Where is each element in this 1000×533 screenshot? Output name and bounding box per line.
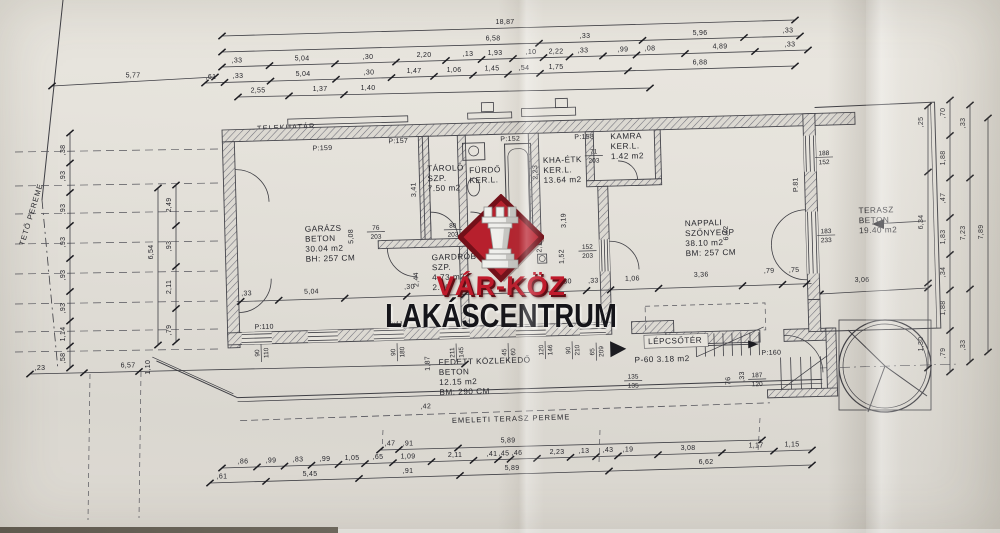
opening-size-label: 90180: [390, 343, 406, 361]
room-label-terasz: TERASZBETON19.40 m2: [858, 205, 897, 235]
room-label-kamra: KAMRAKER.L.1.42 m2: [610, 131, 644, 161]
dim-label: ,38: [60, 145, 67, 156]
dim-label: 1,75: [549, 64, 564, 71]
dim-label: 1,93: [488, 50, 503, 57]
dim-chain-horizontal: 2,551,371,40: [234, 85, 653, 100]
dim-label: 1,37: [313, 86, 328, 93]
position-marker: P.81: [793, 177, 800, 192]
dim-label: ,33: [241, 290, 252, 297]
dim-chain-vertical: 2,49,932,11,79: [166, 182, 180, 345]
dim-label: ,33: [588, 278, 599, 285]
dim-label: 1,10: [145, 360, 152, 375]
room-label-lepcsoter: LÉPCSŐTÉR: [648, 335, 702, 347]
room-label-line: 7.50 m2: [428, 183, 461, 193]
room-label-line: LÉPCSŐTÉR: [648, 335, 702, 347]
dim-label: 2,23: [532, 165, 539, 180]
dim-label: 146: [547, 344, 554, 355]
dim-label: ,33: [232, 58, 243, 65]
room-label-line: SZP.: [432, 263, 451, 273]
dim-chain-vertical: 7,89: [978, 115, 992, 355]
room-label-line: TERASZ: [858, 205, 894, 215]
dim-label: 180: [399, 346, 406, 357]
dim-label: 6,58: [486, 35, 501, 42]
dim-label: ,65: [373, 454, 384, 461]
dim-label: ,93: [60, 303, 67, 314]
dim-label: 1,87: [424, 356, 431, 371]
dim-label: 5,89: [505, 465, 520, 472]
paper-edge-light: [338, 529, 1000, 533]
dim-label: 135: [628, 373, 639, 380]
dim-label: 2,55: [251, 88, 266, 95]
opening-size-label: 183233: [817, 228, 835, 244]
floorplan-photo: 3,06TELEKHATÁRTETŐ PEREMEEMELETI TERASZ …: [0, 0, 1000, 533]
dim-label: 6,62: [699, 459, 714, 466]
dim-label: 211: [449, 347, 456, 358]
dim-label: ,33: [578, 48, 589, 55]
dim-label: ,33: [739, 371, 746, 382]
dim-label: 1,83: [940, 230, 947, 245]
dim-label: ,41: [487, 451, 498, 458]
dim-label: 1,09: [401, 453, 416, 460]
dim-label: 203: [588, 157, 599, 164]
dim-label: 209: [598, 346, 605, 357]
dim-label: 187: [752, 372, 763, 379]
dim-label: ,33: [785, 42, 796, 49]
dim-label: ,08: [645, 46, 656, 53]
dim-label: ,70: [940, 108, 947, 119]
dim-label: 5,04: [296, 71, 311, 78]
room-label-line: 13.64 m2: [543, 175, 581, 185]
dim-label: 110: [263, 347, 270, 358]
opening-size-label: 90210: [565, 341, 581, 359]
dim-label: 5,45: [303, 471, 318, 478]
dim-label: 80: [449, 222, 457, 229]
dim-label: 3,08: [681, 445, 696, 452]
dim-label: ,10: [526, 49, 537, 56]
room-label-line: GARÁZS: [305, 223, 342, 234]
dim-label: ,34: [940, 267, 947, 278]
position-marker: P:158: [574, 134, 594, 142]
room-label-line: KER.L.: [610, 141, 639, 151]
dim-label: 2,20: [417, 52, 432, 59]
dim-label: 2,22: [549, 48, 564, 55]
room-label-line: BM: 290 CM: [439, 387, 490, 397]
dim-label: 6,34: [918, 215, 925, 230]
dim-label: 3,36: [694, 271, 709, 278]
dim-chain-horizontal: ,61,335,04,301,471,061,45,541,756,88: [201, 60, 798, 86]
dim-label: 1,88: [940, 301, 947, 316]
dim-label: 1,40: [361, 85, 376, 92]
dim-label: 2,23: [550, 449, 565, 456]
room-label-line: BETON: [439, 367, 470, 377]
dim-label: ,33: [580, 33, 591, 40]
dim-label: ,45: [499, 450, 510, 457]
dim-label: ,42: [420, 403, 431, 410]
position-marker: P:157: [388, 138, 408, 146]
dim-label: 5,96: [693, 30, 708, 37]
dim-label: 2,19: [536, 238, 543, 253]
dim-label: ,93: [60, 270, 67, 281]
dim-label: 3,06: [855, 277, 870, 284]
dim-label: 6,42: [723, 225, 730, 240]
room-label-line: 38.10 m2: [685, 238, 723, 248]
dim-label: 1,45: [485, 66, 500, 73]
dim-label: 5,77: [126, 73, 141, 80]
dim-chain-horizontal: 6,58,335,96,33: [218, 27, 803, 55]
room-label-line: BETON: [859, 215, 890, 225]
dim-label: 5,04: [304, 288, 319, 295]
dim-label: ,54: [519, 65, 530, 72]
opening-size-label: 65209: [589, 342, 605, 360]
room-label-lepcsoter-terulet: P-60 3.18 m2: [634, 354, 689, 365]
dim-label: ,99: [266, 458, 277, 465]
dim-label: ,13: [579, 448, 590, 455]
dim-label: 210: [574, 344, 581, 355]
dim-label: 120: [538, 344, 545, 355]
room-label-line: NAPPALI: [685, 218, 723, 228]
dim-label: 5,04: [295, 56, 310, 63]
dim-chain-vertical: ,701,88,471,83,341,88,79: [940, 97, 954, 375]
dim-chain-horizontal: ,47,915,89: [376, 437, 765, 453]
dim-label: 18,87: [495, 19, 514, 26]
dim-label: 1,05: [345, 455, 360, 462]
dim-label: ,30: [363, 54, 374, 61]
dim-label: 135: [628, 382, 639, 389]
dim-label: ,79: [940, 348, 947, 359]
dim-label: ,86: [238, 458, 249, 465]
dim-chain-vertical: ,337,23,33: [960, 102, 974, 365]
dim-label: 45: [501, 348, 508, 356]
dim-label: 1,47: [407, 68, 422, 75]
dim-label: 7,89: [978, 225, 985, 240]
dim-label: 90: [254, 349, 261, 357]
dim-label: ,99: [320, 456, 331, 463]
dim-label: ,13: [463, 51, 474, 58]
dim-label: ,33: [233, 73, 244, 80]
dim-label: 1,30: [918, 337, 925, 352]
dim-label: 5,89: [501, 438, 516, 445]
room-label-line: 1.42 m2: [611, 151, 644, 161]
dim-label: 90: [565, 346, 572, 354]
dim-label: ,91: [403, 468, 414, 475]
dim-chain-horizontal: 18,87: [218, 17, 798, 39]
room-label-line: 4.73 m2: [432, 272, 465, 282]
dim-label: 2,30: [557, 278, 572, 285]
dim-chain-horizontal: 5,77: [48, 73, 218, 90]
dim-label: 203: [371, 234, 382, 241]
dim-chain-vertical: ,256,341,30: [918, 103, 932, 371]
dim-label: 1,88: [940, 151, 947, 166]
building-group: GARÁZSBETON30.04 m2BH: 257 CMTÁROLÓSZP.7…: [145, 88, 942, 423]
opening-size-label: 90110: [254, 344, 270, 362]
room-label-line: 30.04 m2: [305, 244, 343, 254]
room-label-line: KHA-ÉTK: [543, 154, 582, 165]
dim-label: ,79: [764, 268, 775, 275]
dim-label: ,93: [60, 204, 67, 215]
room-label-line: SZP.: [427, 174, 446, 184]
room-label-kha-etk: KHA-ÉTKKER.L.13.64 m2: [543, 154, 583, 185]
room-label-furdo: FÜRDŐKER.L.: [469, 164, 501, 185]
room-label-line: 2.90: [432, 283, 450, 292]
dim-label: ,43: [603, 447, 614, 454]
opening-size-label: 152203: [578, 244, 596, 260]
room-label-line: GARDRÓB: [431, 251, 476, 262]
dim-label: 90: [390, 348, 397, 356]
dim-label: ,61: [217, 474, 228, 481]
opening-size-label: 135135: [624, 373, 642, 389]
floor-plan-drawing: 3,06TELEKHATÁRTETŐ PEREMEEMELETI TERASZ …: [0, 0, 1000, 533]
dim-label: 5,08: [348, 229, 355, 244]
dim-label: 60: [510, 348, 517, 356]
dim-label: 1,52: [558, 249, 565, 264]
room-label-line: P-60 3.18 m2: [634, 354, 689, 365]
dim-label: ,23: [35, 365, 46, 372]
dim-label: 152: [582, 244, 593, 251]
dim-label: ,75: [789, 267, 800, 274]
dim-label: 1,14: [60, 327, 67, 342]
dim-label: ,99: [618, 46, 629, 53]
dim-label: 6,57: [121, 363, 136, 370]
position-marker: P:110: [388, 321, 407, 329]
dim-label: ,30: [364, 69, 375, 76]
dim-label: ,93: [166, 241, 173, 252]
room-label-gardrob: GARDRÓBSZP.4.73 m22.90: [431, 251, 477, 292]
dim-label: 3,41: [411, 182, 418, 197]
room-label-line: 12.15 m2: [439, 377, 477, 387]
dim-label: 3,19: [560, 213, 567, 228]
dim-label: 233: [821, 237, 832, 244]
dim-label: 6,54: [148, 245, 155, 260]
dim-label: ,47: [940, 193, 947, 204]
dim-label: 76: [372, 225, 380, 232]
dim-label: ,47: [385, 441, 396, 448]
dim-label: ,33: [783, 27, 794, 34]
room-label-line: KER.L.: [469, 175, 498, 185]
boundary-label: EMELETI TERASZ PEREME: [452, 412, 571, 425]
dim-label: 4,89: [713, 44, 728, 51]
dim-label: ,83: [293, 457, 304, 464]
dim-label: ,76: [725, 377, 732, 388]
dim-chain-vertical: 6,54: [148, 185, 162, 348]
dim-label: ,58: [60, 353, 67, 364]
dim-label: 1,17: [749, 443, 764, 450]
dim-label: ,79: [166, 325, 173, 336]
room-label-line: BH: 257 CM: [306, 253, 356, 263]
dim-label: ,93: [60, 171, 67, 182]
room-label-line: 19.40 m2: [859, 225, 897, 235]
position-marker: P:160: [761, 349, 781, 357]
room-label-line: KAMRA: [610, 131, 642, 141]
dim-label: 145: [458, 346, 465, 357]
dim-label: 152: [819, 159, 830, 166]
dim-label: 1,15: [785, 442, 800, 449]
dim-label: 6,88: [693, 60, 708, 67]
opening-size-label: 188152: [815, 150, 833, 166]
room-label-line: KER.L.: [543, 165, 572, 175]
room-label-line: BETON: [305, 234, 336, 244]
dim-label: 203: [447, 231, 458, 238]
dim-label: 65: [589, 348, 596, 356]
room-label-line: FÜRDŐ: [469, 164, 501, 175]
dim-label: 203: [582, 253, 593, 260]
dim-label: ,93: [60, 237, 67, 248]
dim-label: 2,11: [448, 452, 462, 459]
position-marker: P:152: [500, 136, 520, 144]
dim-label: 2,11: [166, 280, 173, 294]
dim-label: ,91: [403, 440, 414, 447]
dim-label: 7,23: [960, 226, 967, 241]
dim-chain-horizontal: ,335,04,302,20,131,93,102,22,33,99,084,8…: [218, 42, 811, 71]
opening-size-label: 76203: [367, 224, 385, 240]
dim-label: ,46: [512, 450, 523, 457]
dim-label: 1,06: [447, 67, 462, 74]
dim-label: 183: [821, 228, 832, 235]
room-label-line: TÁROLÓ: [427, 162, 464, 173]
dim-label: 188: [818, 150, 829, 157]
dim-label: 2,44: [413, 272, 420, 287]
dim-label: ,33: [960, 118, 967, 129]
dim-label: 2,49: [166, 198, 173, 213]
dim-label: 120: [752, 381, 763, 388]
opening-size-label: 120146: [538, 341, 554, 359]
dim-chain-vertical: ,38,93,93,93,93,931,14,58: [60, 130, 74, 371]
dim-label: ,33: [960, 340, 967, 351]
position-marker: P:159: [312, 145, 332, 153]
room-label-line: BM: 257 CM: [686, 248, 737, 258]
photo-edge-dark: [0, 527, 338, 533]
position-marker: P:110: [254, 324, 273, 332]
dim-label: ,25: [918, 117, 925, 128]
boundary-label: TETŐ PEREME: [17, 182, 45, 247]
dim-label: 71: [590, 149, 598, 156]
room-label-fedett-kozlekedo: FEDETT KÖZLEKEDŐBETON12.15 m2BM: 290 CM: [438, 354, 531, 397]
dim-label: 1,06: [625, 275, 640, 282]
dim-chain-horizontal: ,236,571,10: [26, 360, 468, 377]
dim-label: ,19: [623, 447, 634, 454]
